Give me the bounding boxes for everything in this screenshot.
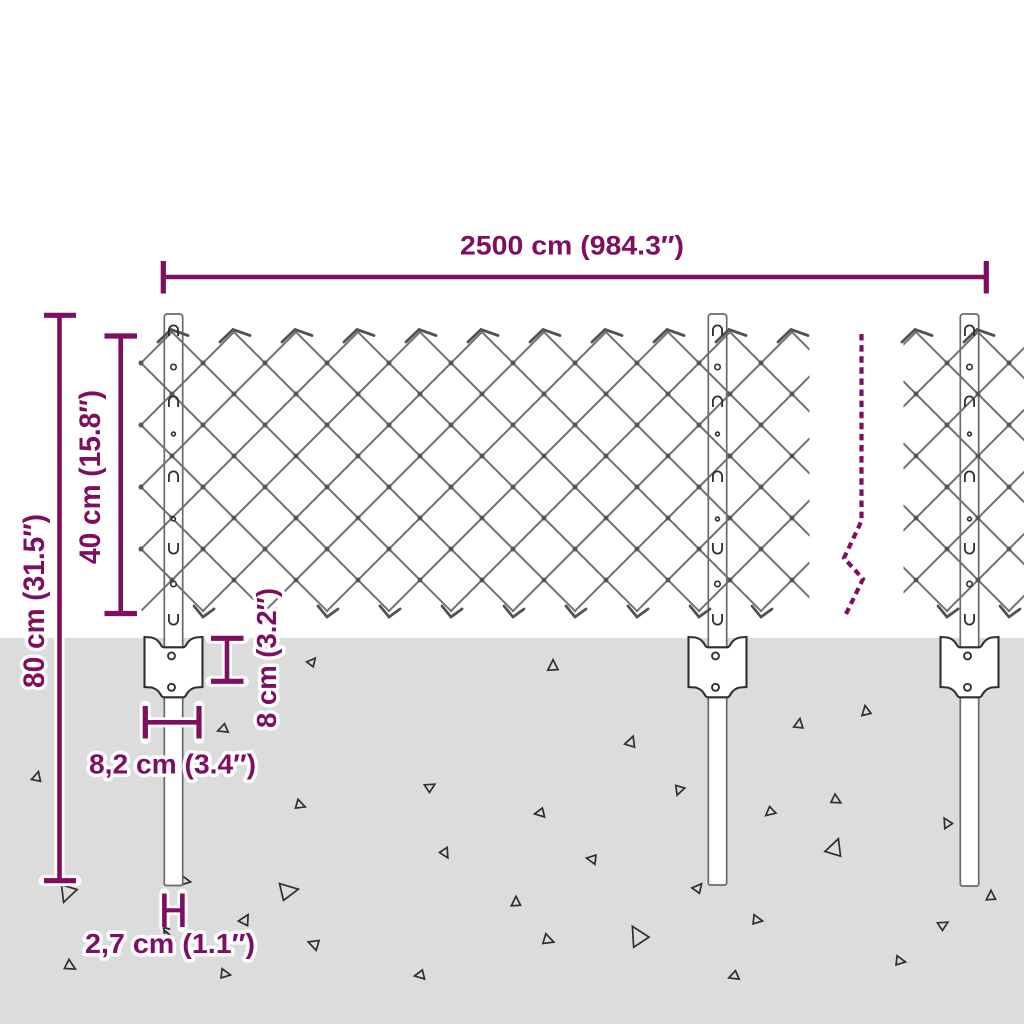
svg-text:2500 cm (984.3″): 2500 cm (984.3″) — [460, 231, 684, 261]
svg-text:40 cm (15.8″): 40 cm (15.8″) — [74, 390, 107, 564]
svg-text:2,7 cm (1.1″): 2,7 cm (1.1″) — [85, 928, 255, 959]
svg-text:8,2 cm (3.4″): 8,2 cm (3.4″) — [89, 749, 256, 780]
svg-text:8 cm (3.2″): 8 cm (3.2″) — [251, 588, 282, 728]
svg-text:80 cm (31.5″): 80 cm (31.5″) — [18, 514, 51, 688]
